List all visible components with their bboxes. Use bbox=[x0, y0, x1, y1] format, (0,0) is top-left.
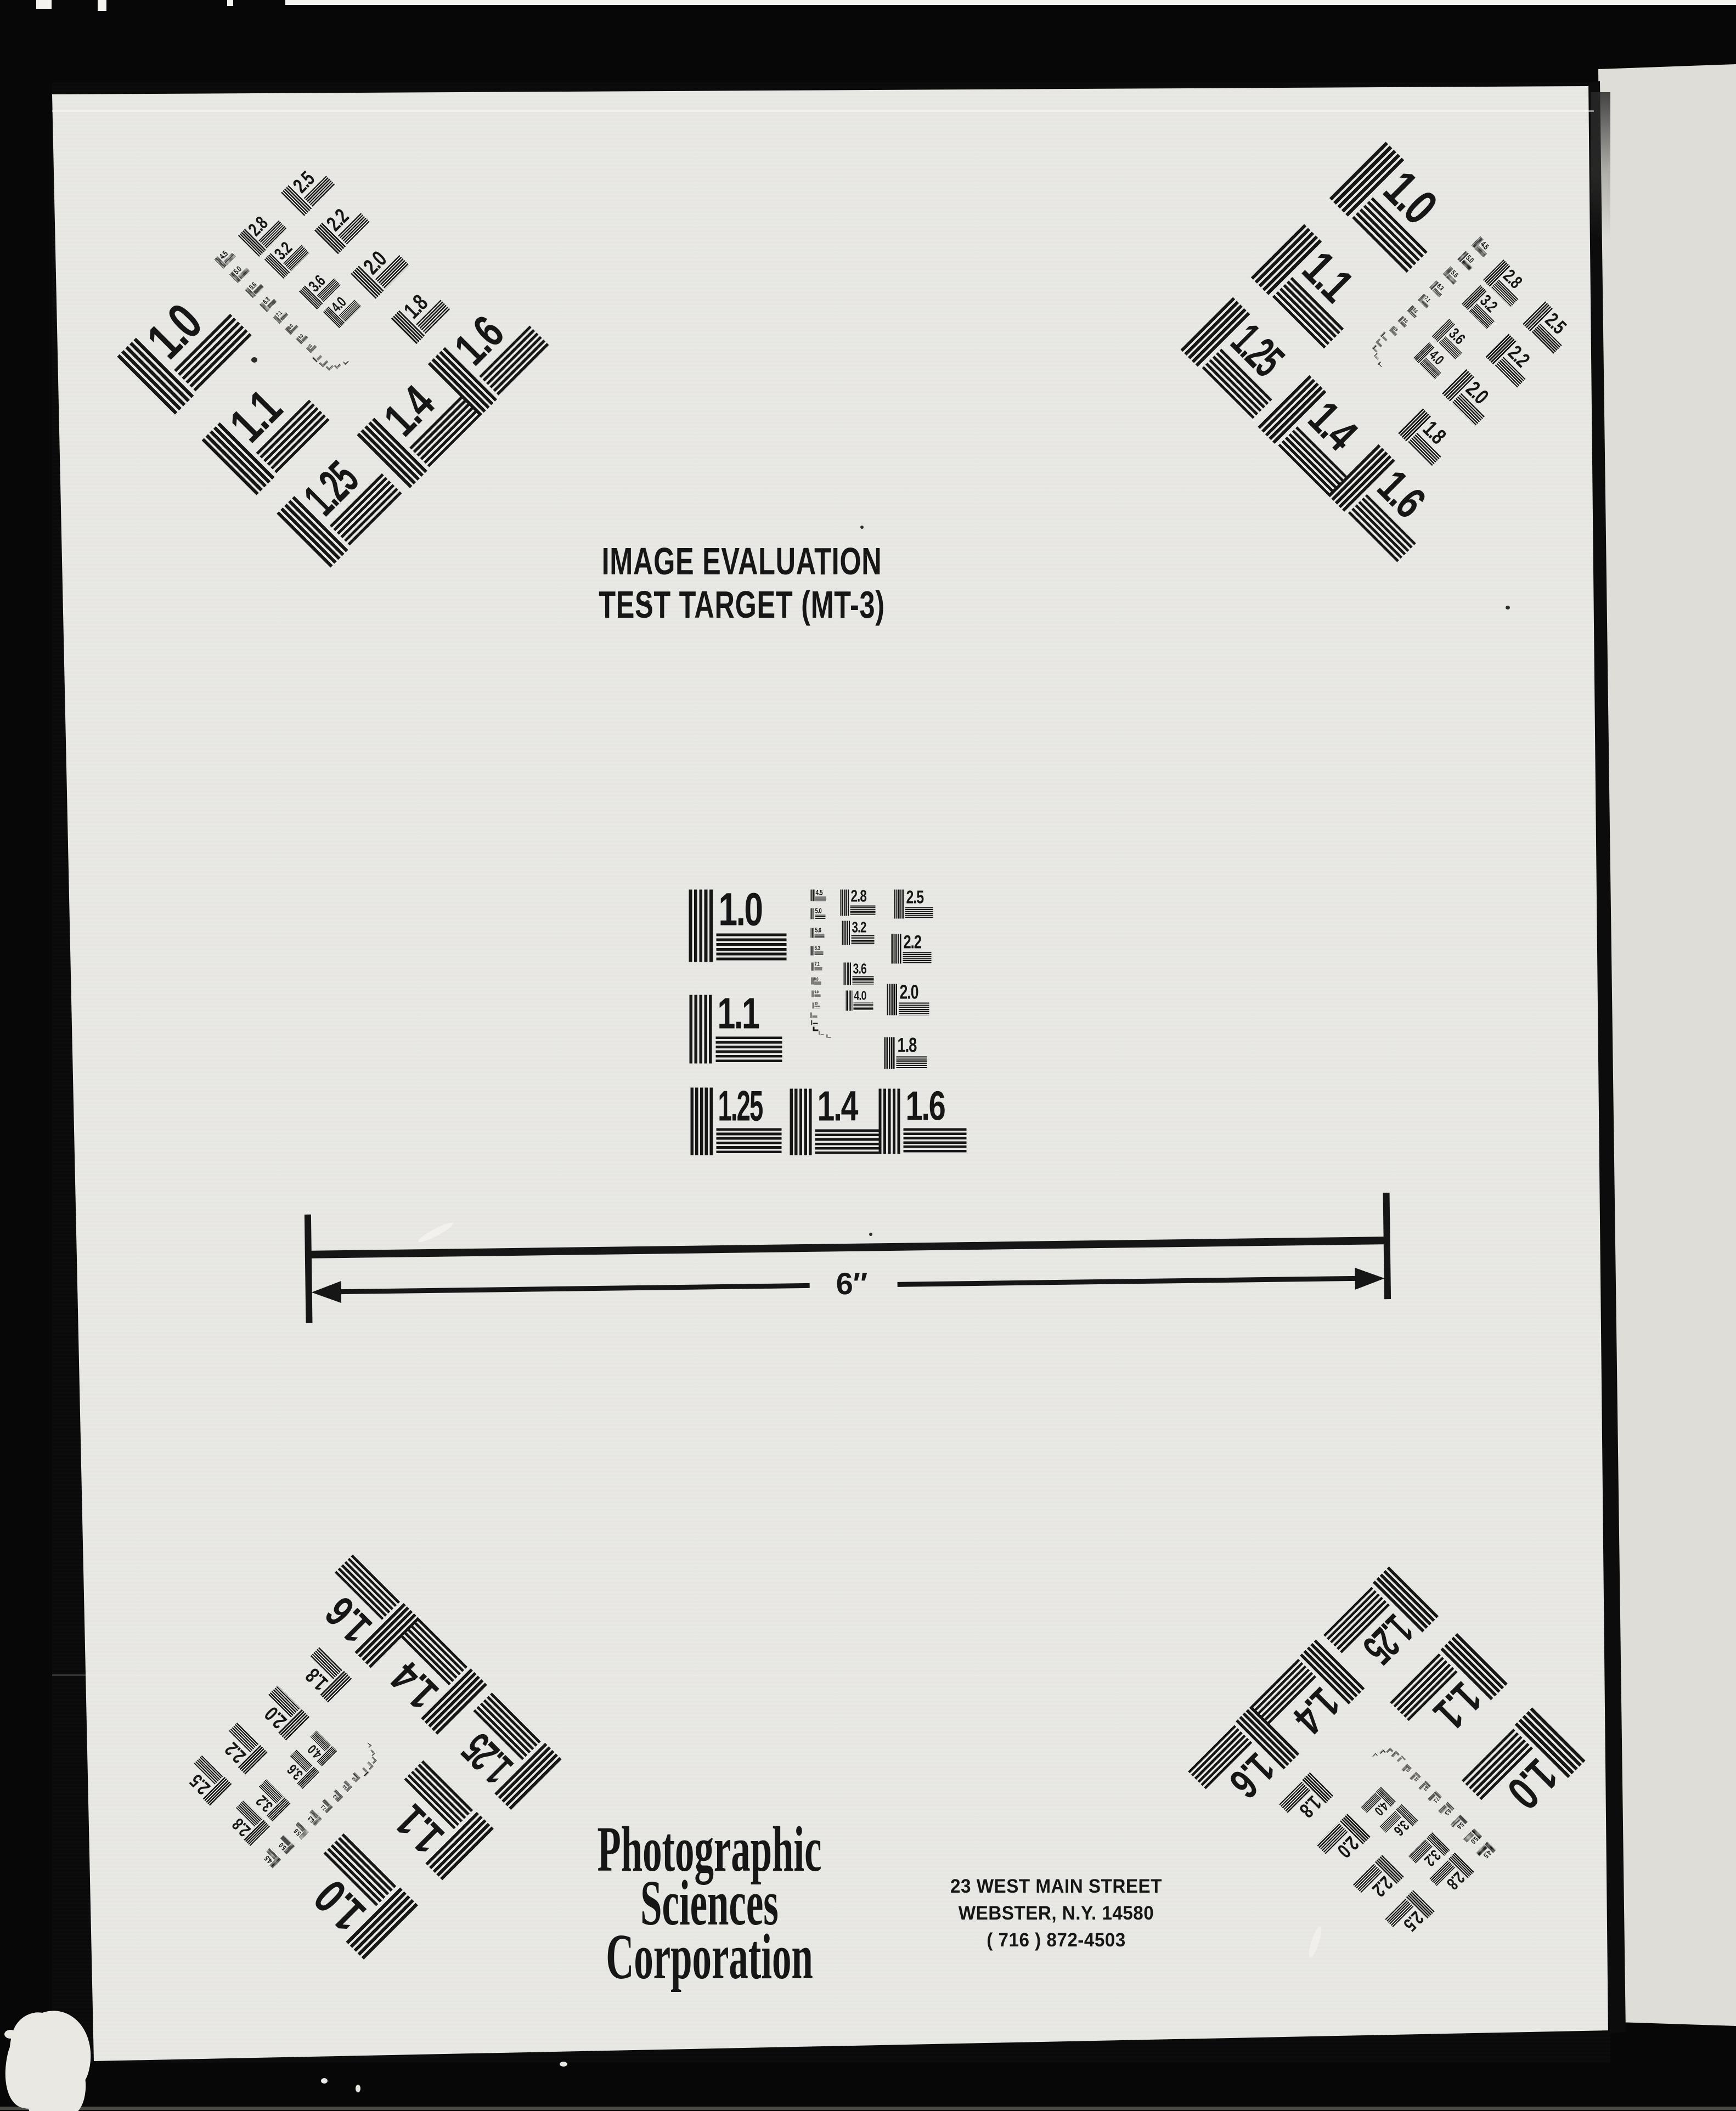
horizontal-bars bbox=[852, 976, 874, 985]
page-title: IMAGE EVALUATION TEST TARGET (MT-3) bbox=[599, 540, 885, 626]
vertical-bars bbox=[846, 991, 853, 1011]
resolution-value: 1.25 bbox=[718, 1085, 763, 1127]
horizontal-bars bbox=[815, 934, 825, 938]
resolution-value: 1.8 bbox=[897, 1036, 916, 1056]
vertical-bars bbox=[811, 928, 814, 938]
scan-streak bbox=[52, 110, 1594, 112]
company-address: 23 WEST MAIN STREET WEBSTER, N.Y. 14580 … bbox=[950, 1873, 1162, 1954]
horizontal-bars bbox=[851, 935, 874, 945]
test-pattern-center: 1.01.11.251.41.62.83.23.64.02.52.22.01.8… bbox=[689, 890, 944, 1205]
horizontal-bars bbox=[1377, 342, 1382, 347]
scale-top-line bbox=[308, 1237, 1387, 1258]
horizontal-bars bbox=[1375, 355, 1379, 359]
horizontal-bars bbox=[828, 1036, 831, 1037]
resolution-value: 2.5 bbox=[906, 888, 923, 907]
horizontal-bars bbox=[899, 1003, 929, 1015]
scale-label: 6″ bbox=[836, 1266, 868, 1302]
address-line-2: WEBSTER, N.Y. 14580 bbox=[950, 1900, 1162, 1927]
horizontal-bars bbox=[904, 1128, 967, 1154]
resolution-value: 10 bbox=[815, 1002, 818, 1006]
divider-smudge bbox=[1591, 92, 1610, 240]
horizontal-bars bbox=[905, 907, 933, 919]
resolution-value: 3.2 bbox=[852, 920, 866, 935]
resolution-value: 4.5 bbox=[815, 889, 822, 896]
resolution-value: 1.4 bbox=[817, 1086, 857, 1128]
vertical-bars bbox=[887, 984, 898, 1015]
horizontal-bars bbox=[1391, 1752, 1396, 1757]
address-line-3: ( 716 ) 872-4503 bbox=[950, 1927, 1162, 1954]
dust-speck bbox=[860, 526, 864, 529]
horizontal-bars bbox=[367, 1762, 372, 1766]
vertical-bars bbox=[811, 908, 815, 919]
horizontal-bars bbox=[815, 1129, 880, 1155]
horizontal-bars bbox=[1386, 1749, 1390, 1753]
horizontal-bars bbox=[337, 364, 341, 368]
horizontal-bars bbox=[814, 952, 824, 956]
horizontal-bars bbox=[850, 905, 876, 916]
horizontal-bars bbox=[814, 995, 821, 997]
horizontal-bars bbox=[815, 896, 826, 901]
film-blemish bbox=[560, 2062, 567, 2067]
resolution-value: 3.6 bbox=[853, 962, 866, 976]
horizontal-bars bbox=[1372, 1754, 1376, 1757]
horizontal-bars bbox=[1382, 336, 1387, 341]
resolution-value: 9.0 bbox=[814, 990, 818, 995]
film-edge-notch bbox=[98, 0, 106, 11]
resolution-value: 5.0 bbox=[815, 908, 822, 915]
horizontal-bars bbox=[329, 365, 334, 369]
horizontal-bars bbox=[1379, 364, 1382, 367]
vertical-bars bbox=[811, 963, 814, 971]
vertical-bars bbox=[842, 921, 850, 945]
dust-speck bbox=[1506, 606, 1510, 609]
resolution-value: 6.3 bbox=[815, 946, 820, 952]
scale-dim-line-right bbox=[898, 1276, 1357, 1287]
horizontal-bars bbox=[1396, 1757, 1402, 1762]
horizontal-bars bbox=[814, 968, 822, 971]
horizontal-bars bbox=[367, 1742, 370, 1746]
vertical-bars bbox=[892, 934, 902, 964]
horizontal-bars bbox=[814, 1029, 818, 1031]
film-edge-sliver bbox=[285, 0, 1736, 5]
horizontal-bars bbox=[317, 355, 323, 361]
horizontal-bars bbox=[897, 1057, 927, 1069]
horizontal-bars bbox=[323, 360, 328, 365]
horizontal-bars bbox=[1379, 1751, 1383, 1754]
resolution-value: 1.6 bbox=[905, 1086, 944, 1127]
vertical-bars bbox=[844, 963, 852, 985]
horizontal-bars bbox=[814, 982, 821, 985]
resolution-value: 2.2 bbox=[904, 933, 921, 951]
vertical-bars bbox=[691, 1088, 714, 1155]
resolution-value: 5.6 bbox=[815, 928, 821, 934]
horizontal-bars bbox=[717, 934, 787, 962]
film-blemish bbox=[356, 2085, 360, 2092]
horizontal-bars bbox=[371, 1757, 376, 1761]
scanned-document-page: IMAGE EVALUATION TEST TARGET (MT-3) 1.01… bbox=[0, 0, 1736, 2111]
scale-bar: 6″ bbox=[301, 1186, 1395, 1329]
film-edge-notch bbox=[36, 0, 52, 9]
horizontal-bars bbox=[903, 952, 931, 963]
film-blemish bbox=[4, 2030, 16, 2039]
horizontal-bars bbox=[345, 360, 348, 364]
horizontal-bars bbox=[1373, 348, 1378, 352]
vertical-bars bbox=[894, 890, 904, 919]
horizontal-bars bbox=[716, 1128, 781, 1155]
horizontal-bars bbox=[854, 1003, 873, 1011]
scale-end-bar-left bbox=[305, 1215, 313, 1323]
resolution-value: 4.0 bbox=[854, 990, 866, 1003]
resolution-value: 7.1 bbox=[815, 962, 820, 968]
horizontal-bars bbox=[820, 1034, 824, 1035]
vertical-bars bbox=[790, 1089, 813, 1155]
vertical-bars bbox=[811, 946, 814, 956]
address-line-1: 23 WEST MAIN STREET bbox=[950, 1873, 1162, 1900]
horizontal-bars bbox=[370, 1749, 374, 1753]
resolution-value: 1.1 bbox=[718, 992, 759, 1036]
vertical-bars bbox=[841, 890, 850, 916]
horizontal-bars bbox=[813, 1023, 818, 1025]
film-edge-notch bbox=[227, 0, 233, 6]
company-name: Photographic Sciences Corporation bbox=[597, 1822, 821, 1984]
horizontal-bars bbox=[362, 1767, 368, 1773]
title-line-1: IMAGE EVALUATION bbox=[599, 540, 885, 583]
resolution-value: 8.0 bbox=[814, 977, 819, 981]
company-line-3: Corporation bbox=[597, 1930, 821, 1984]
horizontal-bars bbox=[812, 1016, 818, 1018]
scale-dim-line-left bbox=[336, 1283, 810, 1294]
horizontal-bars bbox=[715, 1037, 782, 1064]
film-blemish bbox=[321, 2078, 328, 2084]
film-bottom-line bbox=[0, 2107, 1736, 2110]
title-line-2: TEST TARGET (MT-3) bbox=[599, 583, 885, 626]
resolution-value: 2.8 bbox=[851, 888, 866, 905]
vertical-bars bbox=[811, 978, 814, 985]
horizontal-bars bbox=[815, 915, 825, 919]
vertical-bars bbox=[884, 1037, 895, 1069]
resolution-value: 1.0 bbox=[719, 887, 762, 933]
vertical-bars bbox=[690, 995, 714, 1064]
resolution-value: 2.0 bbox=[900, 983, 918, 1002]
vertical-bars bbox=[879, 1089, 901, 1154]
vertical-bars bbox=[811, 890, 815, 901]
horizontal-bars bbox=[815, 1006, 820, 1008]
arrow-right-icon bbox=[1355, 1267, 1385, 1290]
vertical-bars bbox=[689, 890, 714, 962]
vertical-bars bbox=[812, 991, 814, 997]
